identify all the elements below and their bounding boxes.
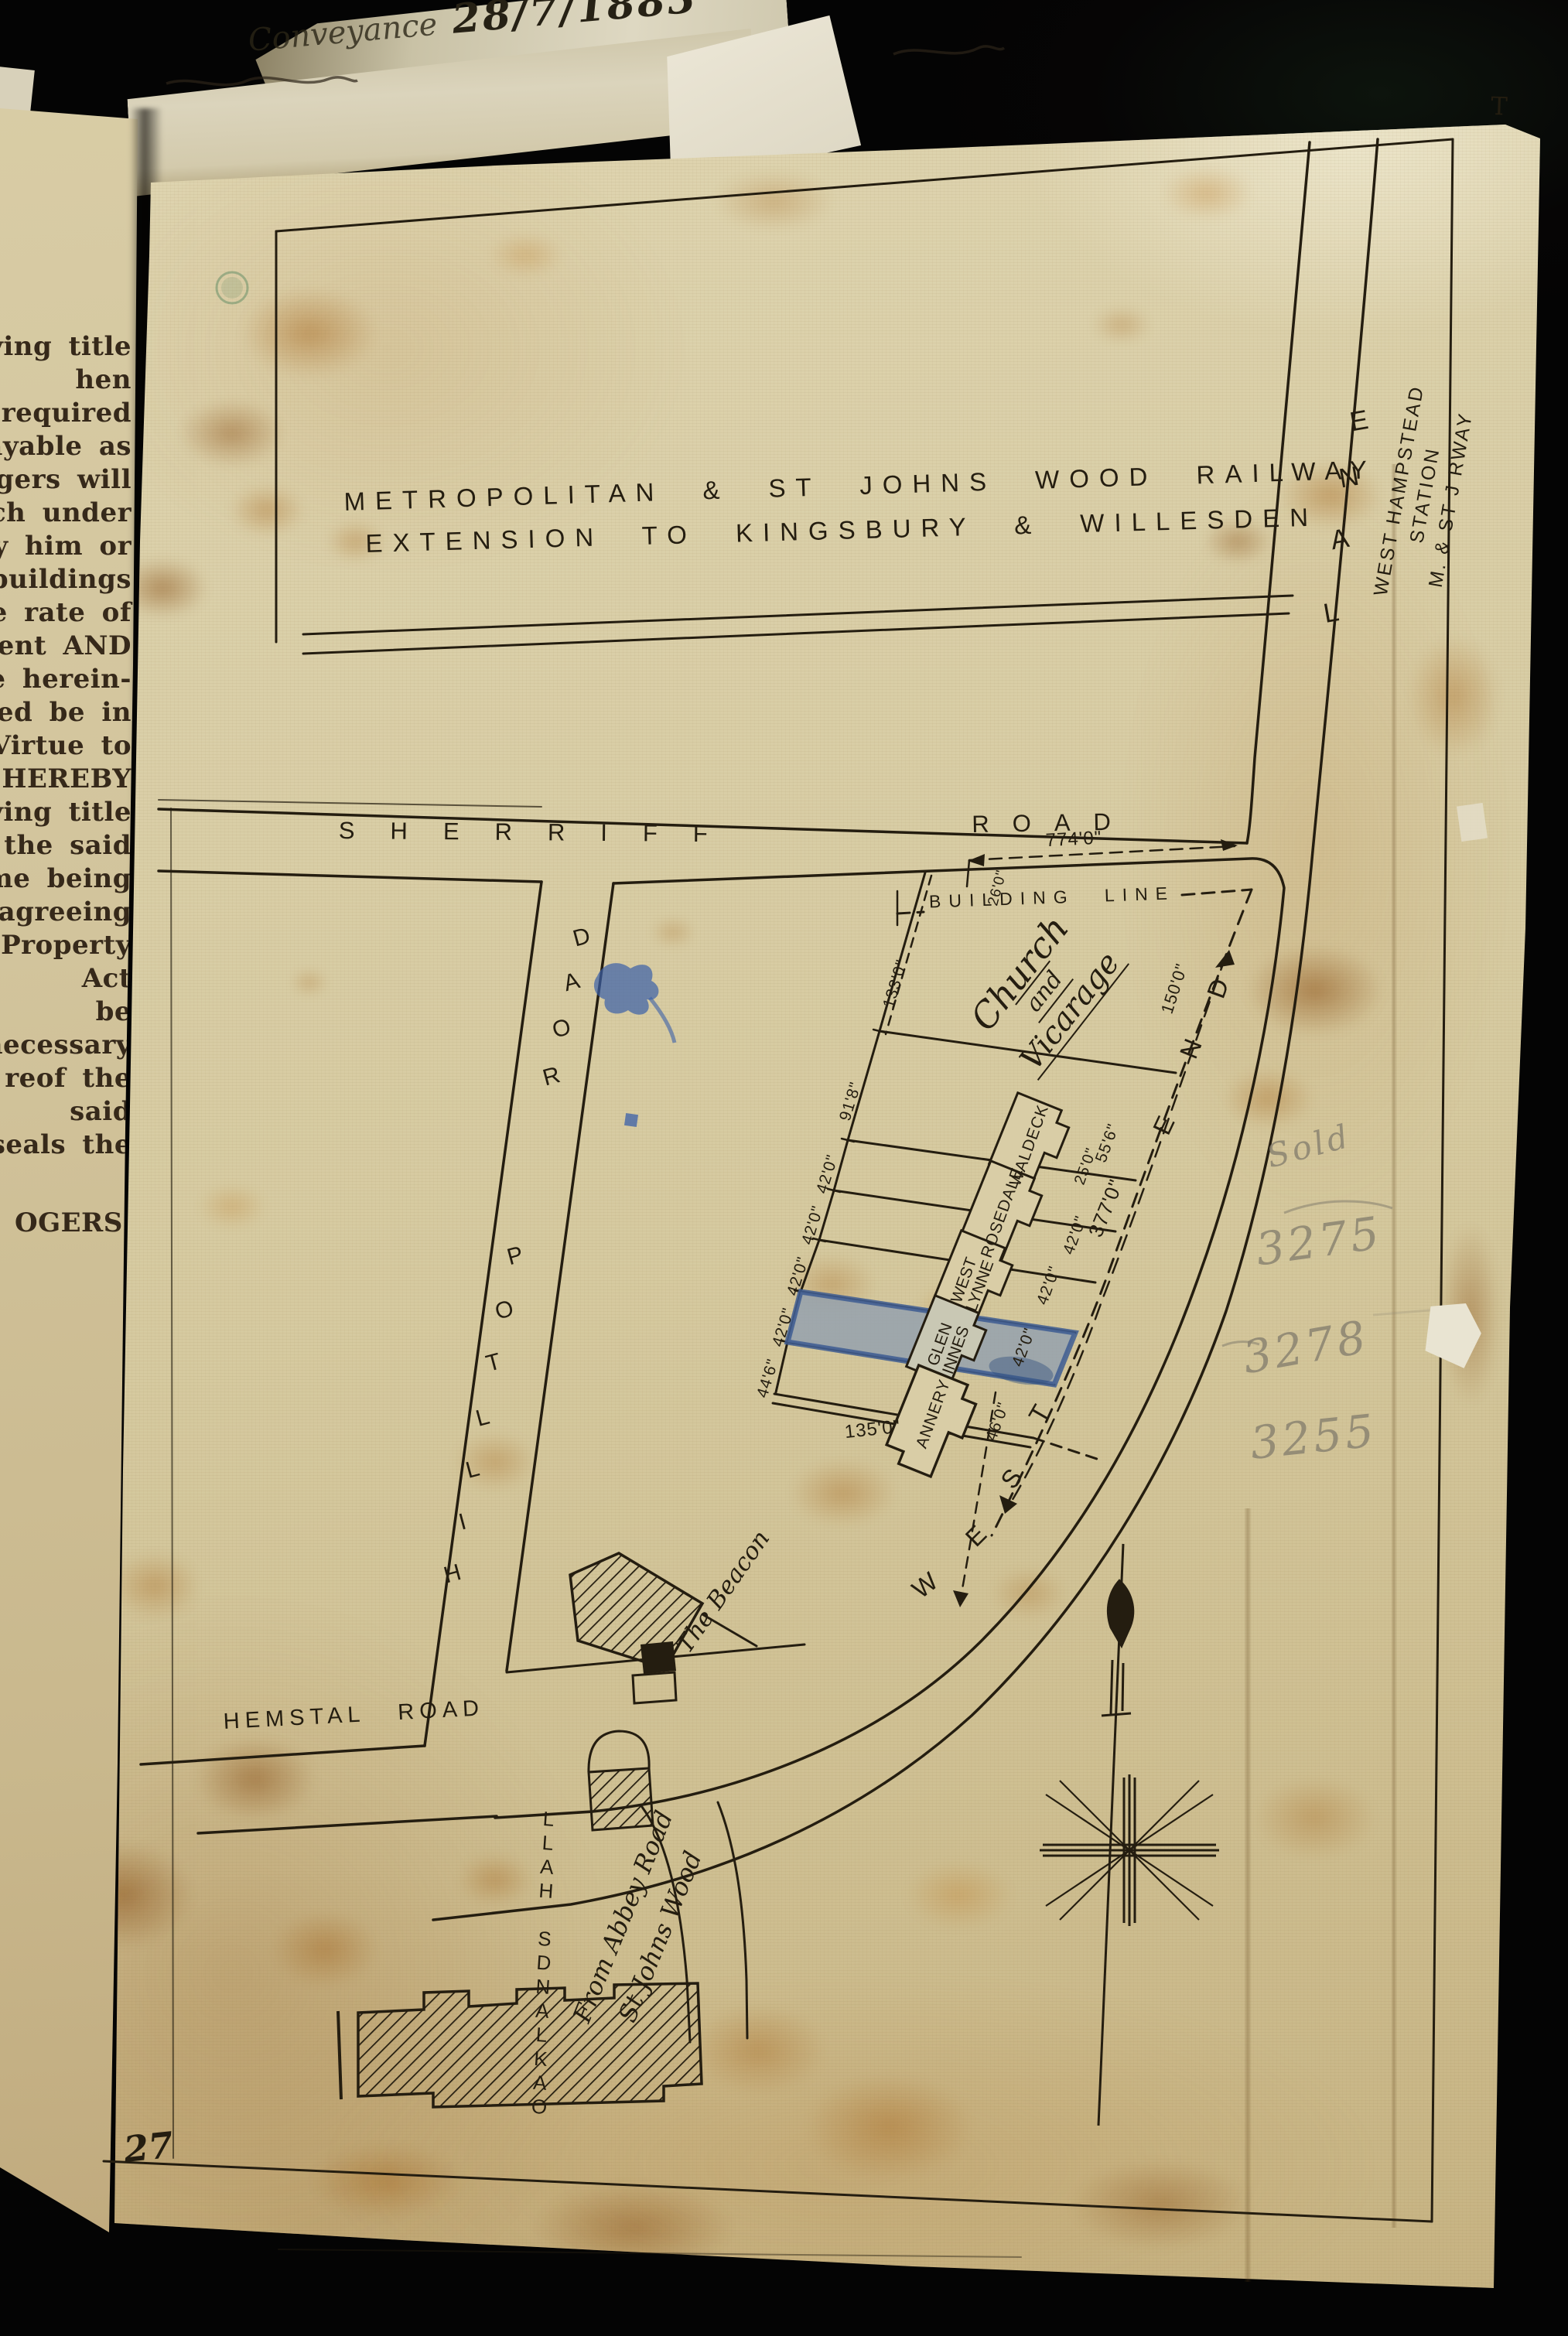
- measurement-label: 150'0": [1158, 961, 1191, 1016]
- label-layer: Conveyance28/7/1883 METROPOLITAN & ST JO…: [0, 0, 1568, 2336]
- house-label-annery: ANNERY: [914, 1377, 955, 1450]
- pencil-note-1: 3275: [1253, 1209, 1385, 1273]
- road-label-oaklands-letter: H: [538, 1880, 555, 1903]
- measurement-label: 25'0": [1072, 1146, 1101, 1187]
- measurement-label: 42'0": [770, 1306, 798, 1349]
- pencil-note-2: 3278: [1239, 1313, 1372, 1381]
- measurement-label: 774'0": [1045, 828, 1102, 851]
- road-label-lane-letter: A: [1328, 524, 1351, 555]
- road-label-oaklands-letter: O: [531, 2096, 548, 2119]
- road-label-hemstal: HEMSTAL ROAD: [223, 1696, 485, 1735]
- road-label-hilltop-letter: O: [550, 1015, 574, 1043]
- road-label-hilltop-letter: D: [570, 924, 593, 951]
- conveyance-note: Conveyance28/7/1883: [246, 0, 699, 61]
- building-line-label: BUILDING LINE: [929, 883, 1176, 910]
- house-label-west-lynne: WEST LYNNE: [948, 1253, 998, 1314]
- road-label-oaklands-letter: A: [539, 1856, 554, 1878]
- road-label-hilltop-letter: T: [483, 1349, 504, 1376]
- road-label-hilltop-letter: P: [504, 1242, 525, 1270]
- measurement-label: 42'0": [1034, 1264, 1064, 1307]
- road-label-sherriff: SHERRIFF: [339, 817, 743, 849]
- measurement-label: 42'0": [784, 1255, 812, 1298]
- house-label-glen-innes: GLEN INNES: [924, 1318, 972, 1376]
- station-label: WEST HAMPSTEAD STATION M. & ST J RWAY: [1368, 383, 1482, 607]
- archival-map-photo: leriving titlehen requiredpayable asRoge…: [0, 0, 1568, 2336]
- measurement-label: 377'0": [1085, 1177, 1128, 1241]
- pencil-note-3: 3255: [1248, 1407, 1378, 1467]
- conveyance-date: 28/7/1883: [450, 0, 699, 43]
- road-label-oaklands-letter: A: [535, 2000, 549, 2022]
- road-label-oaklands-letter: L: [535, 2024, 548, 2046]
- road-label-oaklands-letter: L: [541, 1832, 554, 1854]
- road-label-hilltop-letter: I: [456, 1510, 469, 1535]
- road-label-hilltop-letter: H: [441, 1560, 463, 1588]
- measurement-label: 44'6": [754, 1357, 782, 1400]
- road-label-hilltop-letter: R: [540, 1063, 562, 1091]
- sheet-number: 27: [122, 2126, 176, 2169]
- road-label-oaklands-letter: D: [536, 1952, 552, 1975]
- road-label-oaklands-letter: K: [533, 2048, 548, 2070]
- corner-mark: T: [1491, 94, 1508, 120]
- road-label-oaklands-letter: L: [542, 1808, 555, 1830]
- measurement-label: 42'0": [1061, 1214, 1090, 1257]
- road-label-lane-letter: E: [1348, 406, 1370, 437]
- beacon-label: The Beacon: [672, 1526, 774, 1658]
- pencil-note-sold: Sold: [1263, 1118, 1354, 1173]
- measurement-label: 133'0": [880, 958, 911, 1010]
- road-label-end-letter: D: [1203, 975, 1235, 1002]
- road-label-west-letter: W: [907, 1568, 943, 1603]
- road-label-hilltop-letter: L: [463, 1457, 482, 1484]
- road-label-hilltop-letter: L: [473, 1405, 492, 1432]
- road-label-hilltop-letter: A: [561, 968, 582, 996]
- measurement-label: 42'0": [814, 1153, 842, 1196]
- road-label-oaklands-letter: N: [535, 1976, 552, 1999]
- road-label-end-letter: E: [1149, 1112, 1180, 1139]
- road-label-lane-letter: L: [1321, 598, 1341, 629]
- measurement-label: 42'0": [1009, 1326, 1039, 1369]
- road-label-west-letter: T: [1024, 1401, 1055, 1428]
- road-label-west-letter: E: [961, 1521, 992, 1552]
- road-label-oaklands-letter: S: [537, 1928, 552, 1950]
- conveyance-word: Conveyance: [247, 7, 439, 59]
- road-label-oaklands-letter: A: [532, 2072, 547, 2094]
- measurement-label: 46'0": [983, 1400, 1013, 1443]
- measurement-label: 135'0": [844, 1417, 902, 1443]
- measurement-label: 42'0": [799, 1204, 827, 1247]
- road-label-west-letter: S: [996, 1464, 1028, 1494]
- measurement-label: 91'8": [837, 1080, 865, 1123]
- house-label-rosedale: ROSEDALE: [979, 1166, 1027, 1261]
- road-label-end-letter: N: [1175, 1035, 1207, 1062]
- road-label-hilltop-letter: O: [493, 1296, 517, 1324]
